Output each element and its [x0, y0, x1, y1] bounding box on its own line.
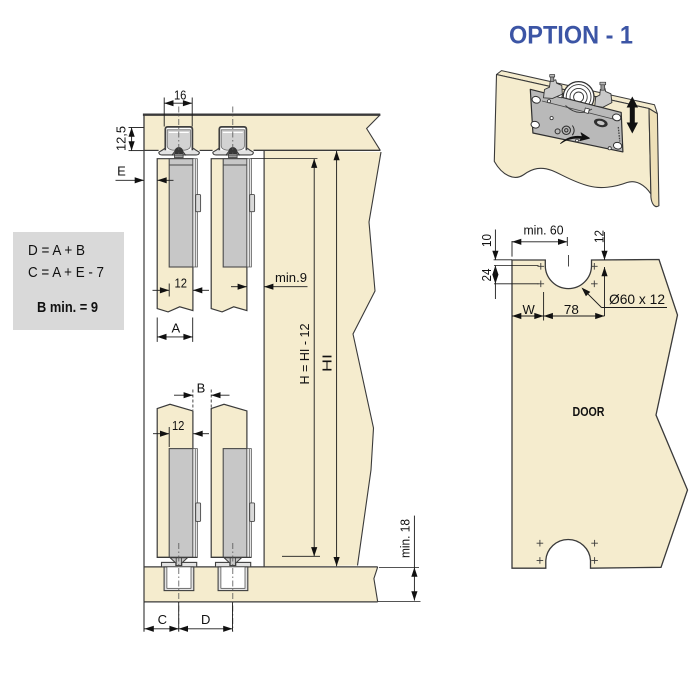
svg-text:C: C [158, 612, 167, 627]
svg-text:D = A + B: D = A + B [28, 243, 85, 259]
svg-text:10: 10 [479, 234, 494, 247]
svg-text:12: 12 [175, 276, 188, 291]
svg-text:12,5: 12,5 [114, 126, 129, 151]
svg-text:12: 12 [172, 418, 185, 433]
svg-text:Ø60 x 12: Ø60 x 12 [609, 291, 665, 307]
svg-text:OPTION - 1: OPTION - 1 [509, 22, 633, 50]
svg-text:HI: HI [320, 354, 335, 372]
svg-text:16: 16 [174, 88, 187, 103]
svg-text:B: B [197, 381, 206, 396]
svg-text:H = HI - 12: H = HI - 12 [297, 324, 312, 385]
svg-text:78: 78 [564, 302, 579, 317]
svg-text:A: A [171, 321, 180, 336]
svg-text:W: W [523, 302, 536, 317]
svg-text:E: E [117, 164, 126, 179]
svg-text:C = A + E - 7: C = A + E - 7 [28, 265, 104, 281]
svg-text:DOOR: DOOR [573, 405, 605, 419]
svg-text:24: 24 [479, 269, 494, 282]
svg-text:min.9: min.9 [275, 270, 307, 285]
svg-text:min. 60: min. 60 [524, 223, 564, 238]
svg-text:D: D [201, 612, 210, 627]
svg-text:min. 18: min. 18 [398, 519, 413, 558]
svg-text:B min. = 9: B min. = 9 [37, 300, 98, 316]
